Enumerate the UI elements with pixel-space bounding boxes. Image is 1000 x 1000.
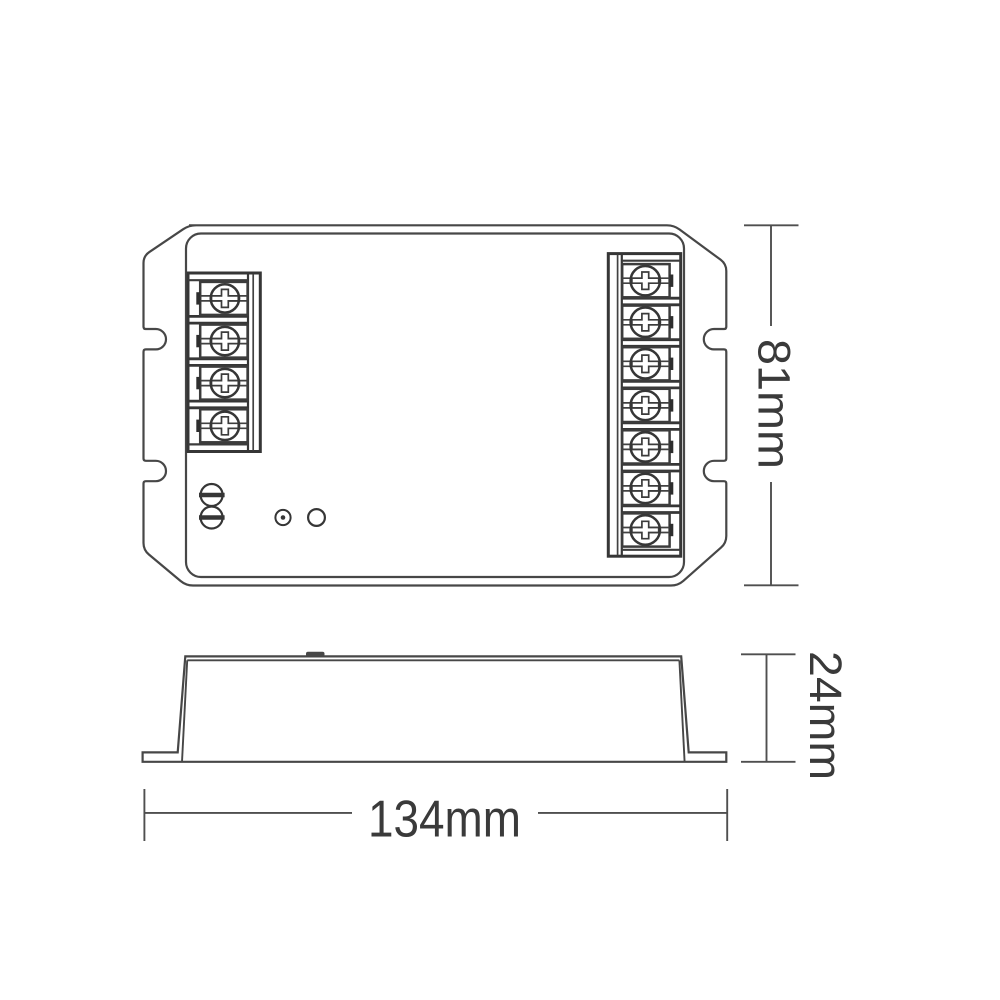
svg-text:81mm: 81mm <box>749 339 800 469</box>
svg-text:134mm: 134mm <box>368 791 521 849</box>
svg-text:24mm: 24mm <box>800 651 851 780</box>
